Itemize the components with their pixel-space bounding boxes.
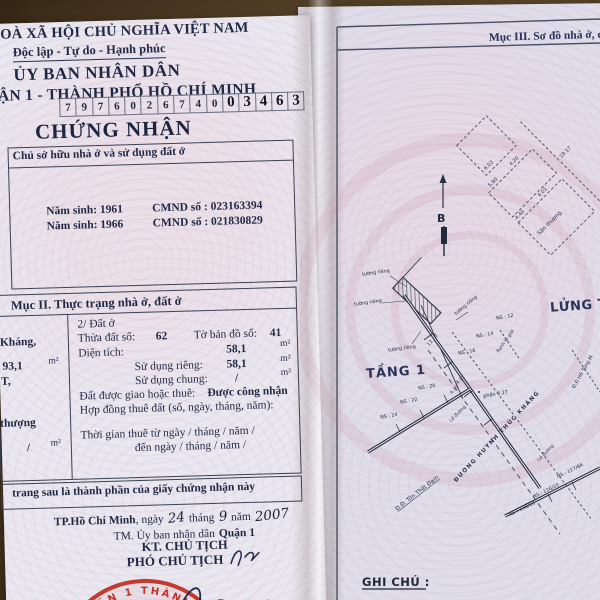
house-number: NS : 22 — [400, 397, 418, 406]
serial-digit: 7 — [174, 94, 191, 113]
dimension-label: 19.17 — [559, 145, 573, 159]
signing-ngay: , ngày — [135, 513, 163, 526]
serial-digit: 6 — [158, 95, 175, 114]
plot-note: phần ô 27 — [482, 387, 508, 399]
owner2-id: CMND số : 021830829 — [152, 214, 262, 229]
left-col-unit: m² — [51, 438, 62, 448]
lease-contract-line: Hợp đồng thuê đất (số, ngày, tháng, năm)… — [80, 399, 274, 416]
flag-icon — [441, 226, 447, 256]
left-col-fragment: Kháng, — [0, 336, 36, 349]
house-number: NS : 24 — [380, 412, 398, 421]
left-col-fragment: / — [27, 442, 31, 454]
dimension-label: 6.03 — [483, 160, 495, 172]
owner2-birth: Năm sinh: 1966 — [47, 218, 124, 232]
dimension-label: 5.80 — [487, 177, 499, 189]
signing-thang: tháng — [189, 512, 215, 525]
map-sheet-label: Tờ bản đồ số: — [194, 328, 258, 342]
area-unit: m² — [280, 339, 291, 349]
house-number: NS : 20 — [418, 383, 436, 392]
left-col-unit: m² — [48, 356, 59, 366]
street-name-ton-that-dam: Đ.Đ. Tôn Thất Đạm — [394, 474, 440, 512]
certificate-photo: OÀ XÃ HỘI CHỦ NGHĨA VIỆT NAM Độc lập - T… — [0, 0, 600, 600]
note-box-text: trang sau là thành phần của giấy chứng n… — [12, 481, 255, 500]
private-use-label: Sử dụng riêng: — [134, 359, 203, 373]
national-title: OÀ XÃ HỘI CHỦ NGHĨA VIỆT NAM — [0, 20, 249, 44]
dimension-label: 4.20 — [508, 155, 520, 167]
north-label: B — [437, 212, 445, 225]
issuer-line1: ỦY BAN NHÂN DÂN — [13, 61, 180, 86]
serial-digit: 0 — [125, 96, 142, 115]
area-value: 58,1 — [226, 343, 246, 356]
section1-heading: Chủ sở hữu nhà ở và sử dụng đất ở — [13, 146, 186, 163]
serial-digit: 4 — [190, 94, 207, 113]
serial-digit: 2 — [142, 95, 159, 114]
sidewalk-label: Lề đường — [447, 403, 468, 424]
dimension-label: 4.01 — [537, 186, 549, 198]
parcel-label: Thửa đất số: — [78, 331, 136, 345]
map-sheet-value: 41 — [270, 327, 282, 339]
shared-use-label: Sử dụng chung: — [135, 373, 208, 387]
signature — [155, 568, 277, 600]
serial-digit: 7 — [93, 97, 110, 116]
owner1-id: CMND số : 023163394 — [152, 199, 262, 214]
section2-status-box: Mục II. Thực trạng nhà ở, đất ở Kháng, 9… — [0, 287, 302, 482]
dimension-label: 4.40 — [514, 209, 526, 221]
page-left: OÀ XÃ HỘI CHỦ NGHĨA VIỆT NAM Độc lập - T… — [0, 15, 328, 600]
tenure-label: Đất được giao hoặc thuê: — [79, 387, 195, 402]
column-divider — [67, 314, 73, 479]
section3-heading: Mục III. Sơ đồ nhà ở, đ — [489, 28, 600, 44]
owner1-birth: Năm sinh: 1961 — [46, 203, 123, 217]
serial-digit: 6 — [109, 96, 126, 115]
signing-nam: năm — [231, 511, 251, 524]
tenure-value: Được công nhận — [207, 385, 288, 399]
left-col-fragment: thượng — [0, 417, 36, 430]
shared-use-unit: m² — [281, 368, 292, 378]
wall-label: tường riêng — [362, 267, 391, 278]
certificate-title: CHỨNG NHẬN — [35, 115, 192, 144]
serial-digit: 7 — [59, 98, 77, 117]
serial-digit: 9 — [76, 97, 93, 116]
serial-digit-bold: 3 — [239, 93, 256, 112]
lease-term-to: đến ngày / tháng / năm / — [135, 439, 246, 454]
house-number: NS : 118/10 — [508, 500, 536, 518]
house-number: NS : 14 — [476, 331, 494, 340]
serial-digit-bold: 4 — [256, 92, 273, 111]
site-plan: Mục III. Sơ đồ nhà ở, đ B 5.80 4 — [300, 0, 600, 600]
private-use-unit: m² — [280, 354, 291, 364]
notes-heading: GHI CHÚ : — [362, 574, 430, 589]
left-col-fragment: 93,1 — [2, 360, 22, 373]
note-marker — [478, 391, 480, 393]
land-subheading: 2/ Đất ở — [77, 318, 115, 331]
left-col-fragment: T, — [1, 376, 11, 388]
boundary-label: Ranh lộ giới — [495, 328, 516, 354]
serial-digit: 0 — [207, 94, 224, 113]
note-box: trang sau là thành phần của giấy chứng n… — [1, 475, 303, 509]
house-number: NS : 12 — [496, 313, 514, 322]
section1-owner-box: Chủ sở hữu nhà ở và sử dụng đất ở Năm si… — [7, 140, 297, 290]
building-plot — [393, 258, 460, 324]
national-motto: Độc lập - Tự do - Hạnh phúc — [13, 41, 166, 62]
private-use-value: 58,1 — [226, 358, 246, 371]
floor1-label: TẦNG 1 — [365, 360, 426, 382]
serial-digit-bold: 0 — [223, 93, 240, 112]
shared-use-value: / — [235, 372, 239, 384]
parcel-value: 62 — [156, 330, 168, 342]
wall-label: tường riêng — [354, 297, 383, 308]
area-label: Diện tích: — [78, 346, 124, 359]
mezzanine-label: LỬNG T.1 — [549, 294, 600, 316]
serial-digit-bold: 6 — [272, 92, 289, 111]
